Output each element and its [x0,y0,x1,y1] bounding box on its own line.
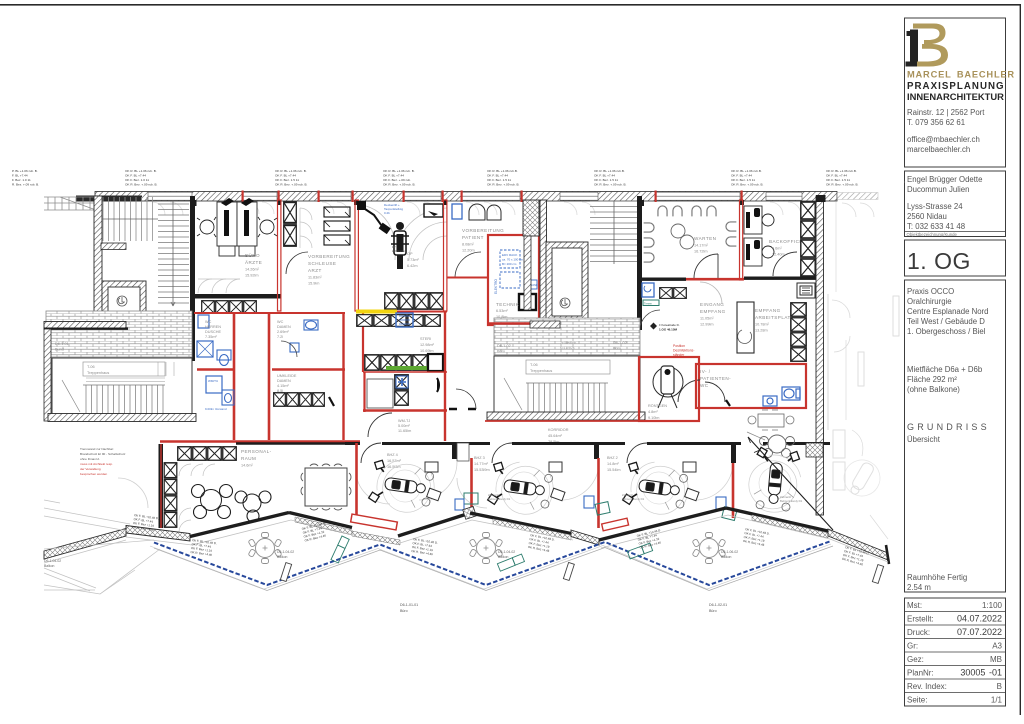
svg-text:T: 032 633 41 48: T: 032 633 41 48 [907,222,965,231]
svg-text:45.64m²: 45.64m² [548,434,563,438]
svg-text:OK R. Bez. +.09 rub. B.: OK R. Bez. +.09 rub. B. [487,183,520,187]
svg-text:Mietfläche D6a + D6b: Mietfläche D6a + D6b [907,365,983,374]
svg-text:DUSCHE: DUSCHE [205,330,222,334]
svg-text:OK F. Bez. 1.5 11: OK F. Bez. 1.5 11 [275,178,299,182]
svg-text:WC: WC [700,383,709,388]
svg-text:Trennwand zur Nachbar:: Trennwand zur Nachbar: [80,447,114,451]
svg-text:VORBEREITUNG: VORBEREITUNG [308,254,350,259]
svg-text:9.10lm: 9.10lm [648,416,659,420]
svg-text:Lyss-Strasse 24: Lyss-Strasse 24 [907,202,963,211]
svg-text:30005 -01: 30005 -01 [960,668,1002,678]
svg-text:Teil West / Gebäude D: Teil West / Gebäude D [907,317,985,326]
svg-text:Treppenhaus: Treppenhaus [530,369,552,373]
svg-text:Fläche 292 m²: Fläche 292 m² [907,375,957,384]
svg-text:10.78m²: 10.78m² [755,323,770,327]
svg-text:15.9lm: 15.9lm [308,282,319,286]
svg-text:D6-1-01-01: D6-1-01-01 [400,603,418,607]
svg-text:Desinfektions-: Desinfektions- [673,349,694,353]
svg-text:9.00lm Vorwand: 9.00lm Vorwand [205,407,227,411]
svg-text:Objektbezeichnung/Kunde: Objektbezeichnung/Kunde [907,232,958,237]
svg-text:Position: Position [673,344,685,348]
svg-text:PERSONAL-: PERSONAL- [241,449,272,454]
svg-text:1. Obergeschoss / Biel: 1. Obergeschoss / Biel [907,327,986,336]
svg-text:14.17m²: 14.17m² [694,244,709,248]
svg-text:12.40m: 12.40m [772,253,785,257]
svg-text:Balkon: Balkon [44,564,54,568]
svg-text:15.54lm: 15.54lm [607,468,621,472]
svg-text:7.2l: 7.2l [277,335,283,339]
svg-text:OK F. Bez. 1.5 11: OK F. Bez. 1.5 11 [487,178,511,182]
svg-text:WC: WC [205,320,212,324]
svg-text:12.20m: 12.20m [462,249,475,253]
svg-text:WM/TU: WM/TU [208,379,218,383]
svg-text:Praxis OCCO: Praxis OCCO [907,287,954,296]
svg-text:12.98m²: 12.98m² [420,343,435,347]
svg-text:12.99lm: 12.99lm [700,323,714,327]
svg-text:11.65lm: 11.65lm [398,429,411,433]
svg-text:OK R. BL +1.06 rub.B.: OK R. BL +1.06 rub.B. [487,169,518,173]
svg-text:ständer: ständer [673,353,685,357]
svg-text:D6-1-02-01: D6-1-02-01 [709,603,727,607]
svg-text:6.42m: 6.42m [407,264,418,268]
svg-text:OK R. BL +1.06 rub. B.: OK R. BL +1.06 rub. B. [383,169,415,173]
svg-text:Ducommun Julien: Ducommun Julien [907,185,969,194]
svg-text:Mst:: Mst: [907,601,922,610]
svg-text:F. BL +7.44: F. BL +7.44 [12,174,28,178]
svg-text:Büro: Büro [613,347,621,351]
svg-text:Seite:: Seite: [907,696,927,705]
svg-text:8.08m²: 8.08m² [462,243,475,247]
svg-text:Druck:: Druck: [907,628,930,637]
svg-text:Rev. Index:: Rev. Index: [907,682,947,691]
svg-text:PlanNr:: PlanNr: [907,669,934,678]
svg-text:4.15m²: 4.15m² [277,384,290,388]
svg-text:Belmont Evoly D1: Belmont Evoly D1 [780,499,803,503]
svg-text:GRUNDRISS: GRUNDRISS [907,422,990,432]
svg-text:Brandschutz EI 90 - Schallschu: Brandschutz EI 90 - Schallschutz [80,452,126,456]
svg-text:BÜRO: BÜRO [245,252,260,258]
svg-text:P. BL +1.06 rub. B.: P. BL +1.06 rub. B. [12,169,38,173]
svg-text:± Kotealtude D.: ± Kotealtude D. [659,323,680,327]
svg-text:TECHNIK: TECHNIK [496,302,520,307]
svg-text:1/1: 1/1 [991,696,1003,705]
svg-text:A3: A3 [992,642,1002,651]
svg-text:Belmont Evoly D1: Belmont Evoly D1 [488,497,511,501]
svg-text:EMPFANG: EMPFANG [755,308,781,313]
svg-text:OK R. Bez. +.09 rub. B.: OK R. Bez. +.09 rub. B. [826,183,859,187]
svg-text:14.8m²: 14.8m² [607,462,620,466]
svg-text:IV- /: IV- / [700,369,711,374]
svg-text:11.83m²: 11.83m² [308,276,322,280]
svg-text:WARTEN: WARTEN [694,236,716,241]
svg-text:14.26m²: 14.26m² [245,268,260,272]
svg-text:OK R. Bez. +.09 rub. B.: OK R. Bez. +.09 rub. B. [275,183,308,187]
svg-text:Belmont Evoly D1: Belmont Evoly D1 [622,497,645,501]
svg-text:Engel Brügger Odette: Engel Brügger Odette [907,175,982,184]
svg-text:15.92lm: 15.92lm [245,274,259,278]
svg-text:EINGANG: EINGANG [700,302,724,307]
svg-text:DAMEN: DAMEN [277,379,291,383]
svg-text:KORRIDOR: KORRIDOR [548,428,569,432]
svg-text:ELEKTRO: ELEKTRO [494,279,498,294]
svg-text:5.73m²: 5.73m² [407,258,420,262]
svg-text:OK F. BL +7.44: OK F. BL +7.44 [275,174,296,178]
svg-text:9.6m²: 9.6m² [772,247,782,251]
svg-text:PATIENTEN-: PATIENTEN- [700,376,731,381]
svg-text:D6-1-04-02: D6-1-04-02 [277,550,294,554]
svg-text:INNENARCHITEKTUR: INNENARCHITEKTUR [907,91,1004,102]
svg-text:Balkon: Balkon [498,555,508,559]
svg-text:OK R. BL +1.06 rub.B.: OK R. BL +1.06 rub.B. [731,169,762,173]
svg-text:OK F. BL +7.44: OK F. BL +7.44 [125,174,146,178]
svg-text:(ohne Balkone): (ohne Balkone) [907,385,960,394]
svg-text:EMPFANG: EMPFANG [700,309,726,314]
svg-text:DAMEN: DAMEN [277,325,291,329]
svg-text:Treppenhaus: Treppenhaus [87,371,109,375]
svg-text:F. Bez. 1.0 11: F. Bez. 1.0 11 [12,178,31,182]
svg-text:2x Medizin: 2x Medizin [560,341,576,345]
svg-text:D6-1-04-02: D6-1-04-02 [44,559,61,563]
svg-text:D6-1-04-02: D6-1-04-02 [498,550,515,554]
svg-text:ARZT: ARZT [308,268,322,273]
svg-text:T-06: T-06 [87,365,95,369]
svg-text:2.54 m: 2.54 m [907,583,931,592]
svg-text:marcelbaechler.ch: marcelbaechler.ch [907,145,970,154]
svg-text:OK R. Bez. +.09 rub. B.: OK R. Bez. +.09 rub. B. [594,183,627,187]
svg-text:1:100: 1:100 [982,601,1003,610]
svg-text:muss mit Architekt resp.: muss mit Architekt resp. [80,462,113,466]
svg-text:HERREN: HERREN [205,325,221,329]
svg-text:Übersicht: Übersicht [907,435,941,444]
svg-text:ohne Dmaxl A: ohne Dmaxl A [80,457,100,461]
svg-text:1. OG: 1. OG [907,248,971,274]
svg-text:STERI: STERI [420,337,431,341]
svg-text:RAUM: RAUM [241,456,256,461]
svg-text:besprochen werden: besprochen werden [80,472,107,476]
svg-text:SCHLEUSE: SCHLEUSE [308,261,336,266]
svg-text:07.07.2022: 07.07.2022 [957,627,1002,637]
svg-text:WM-TJ: WM-TJ [398,419,410,423]
svg-text:OK F. Bez. +.09 rub.: OK F. Bez. +.09 rub. [383,178,411,182]
svg-text:Luftstation: Luftstation [392,249,406,253]
svg-text:13.28m: 13.28m [755,329,768,333]
svg-text:Büro: Büro [400,609,408,613]
svg-text:OK F. BL +7.44: OK F. BL +7.44 [731,174,752,178]
svg-text:OK F. BL +7.44: OK F. BL +7.44 [594,174,615,178]
svg-text:Raumhöhe Fertig: Raumhöhe Fertig [907,573,967,582]
svg-text:BHZ 3: BHZ 3 [474,456,485,460]
svg-text:1.OG 46.15M: 1.OG 46.15M [659,328,678,332]
svg-text:VORBEREITUNG: VORBEREITUNG [462,228,504,233]
svg-text:14.6m²: 14.6m² [241,464,254,468]
svg-text:B= 200 cm: B= 200 cm [502,262,517,266]
svg-text:2.69m²: 2.69m² [277,330,290,334]
svg-text:4.8m²: 4.8m² [648,410,658,414]
svg-text:Oralchirurgie: Oralchirurgie [907,297,952,306]
svg-text:Balkon: Balkon [277,555,287,559]
svg-text:office@mbaechler.ch: office@mbaechler.ch [907,135,980,144]
svg-text:6.53m²: 6.53m² [496,309,509,313]
svg-text:D6-1-06-02: D6-1-06-02 [721,550,738,554]
svg-text:10.69lm: 10.69lm [420,349,434,353]
svg-text:7.35m²: 7.35m² [205,335,218,339]
svg-text:OK R. Bez. +.09 rub. B.: OK R. Bez. +.09 rub. B. [125,183,158,187]
svg-text:OK F. BL +7.44: OK F. BL +7.44 [826,174,847,178]
svg-text:16.72lm: 16.72lm [694,250,708,254]
svg-text:BHZ 4: BHZ 4 [387,453,398,457]
svg-text:BACKOFFICE: BACKOFFICE [769,239,803,244]
svg-text:OK R. Bez. +.09 rub. B.: OK R. Bez. +.09 rub. B. [731,183,764,187]
svg-text:Büro: Büro [497,350,505,354]
svg-text:ÄRZTE: ÄRZTE [245,259,262,265]
svg-text:Gez:: Gez: [907,655,924,664]
svg-text:11.05m²: 11.05m² [700,317,714,321]
svg-text:der Verwaltung: der Verwaltung [80,467,101,471]
svg-text:RÖNTGEN: RÖNTGEN [648,404,667,408]
svg-text:Balkon: Balkon [721,555,731,559]
svg-text:Büro: Büro [709,609,717,613]
svg-text:OK R. BL +1.06 rub.B.: OK R. BL +1.06 rub.B. [594,169,625,173]
svg-text:OK F. Bez. 1.5 11: OK F. Bez. 1.5 11 [594,178,618,182]
svg-text:MB: MB [990,655,1002,664]
svg-text:R. Bez. +.09 rub. B.: R. Bez. +.09 rub. B. [12,183,39,187]
svg-text:16.57m²: 16.57m² [387,459,402,463]
svg-text:D6-1-02: D6-1-02 [613,341,627,345]
svg-text:Rainstr. 12 | 2562 Port: Rainstr. 12 | 2562 Port [907,108,985,117]
svg-text:Tresen: Tresen [644,302,653,306]
svg-text:T-06: T-06 [530,363,538,367]
svg-text:OK R. BL +1.06 rub. B.: OK R. BL +1.06 rub. B. [275,169,307,173]
svg-text:B: B [997,682,1002,691]
svg-text:0.2b: 0.2b [384,211,390,215]
svg-text:PATIENT: PATIENT [462,235,484,240]
svg-text:BHZ 2: BHZ 2 [607,456,618,460]
svg-text:OK F. Bez. 1.5 11: OK F. Bez. 1.5 11 [826,178,850,182]
svg-text:MARCEL BAECHLER: MARCEL BAECHLER [907,70,1015,80]
svg-text:15.53l9m: 15.53l9m [474,468,490,472]
svg-text:ARBEITSPLATZ: ARBEITSPLATZ [755,315,794,320]
svg-text:Gr:: Gr: [907,642,918,651]
svg-text:OK F. BL +7.44: OK F. BL +7.44 [383,174,404,178]
svg-text:Bund: Bund [55,348,64,352]
svg-text:ca. 70 x 100 cm: ca. 70 x 100 cm [502,258,524,262]
svg-text:OK R. Bez. +.09 rub. B.: OK R. Bez. +.09 rub. B. [383,183,416,187]
svg-text:OK R. BL +1.06 rub.B.: OK R. BL +1.06 rub.B. [826,169,857,173]
svg-text:Centre Esplanade Nord: Centre Esplanade Nord [907,307,988,316]
svg-text:OK F. BL +7.44: OK F. BL +7.44 [487,174,508,178]
svg-text:D6-1-01: D6-1-01 [55,342,69,346]
svg-text:5.00m²: 5.00m² [398,424,411,428]
svg-text:D6-1-02: D6-1-02 [497,344,511,348]
svg-text:T. 079 356 62 61: T. 079 356 62 61 [907,118,965,127]
svg-text:04.07.2022: 04.07.2022 [957,614,1002,624]
svg-text:14.77m²: 14.77m² [474,462,489,466]
svg-text:OK R. BL +1.06 rub. B.: OK R. BL +1.06 rub. B. [125,169,157,173]
svg-text:2560 Nidau: 2560 Nidau [907,212,947,221]
svg-text:OK F. Bez. 1.5 11: OK F. Bez. 1.5 11 [731,178,755,182]
svg-text:OP: OP [407,252,413,256]
svg-text:OK F. Bez. 1.0 11: OK F. Bez. 1.0 11 [125,178,149,182]
svg-text:s=17.9l2s: s=17.9l2s [560,346,575,350]
svg-text:WC: WC [277,320,284,324]
svg-text:EDV RACK: EDV RACK [502,253,517,257]
svg-text:UMKLEIDE: UMKLEIDE [277,374,297,378]
svg-text:Erstellt:: Erstellt: [907,615,934,624]
